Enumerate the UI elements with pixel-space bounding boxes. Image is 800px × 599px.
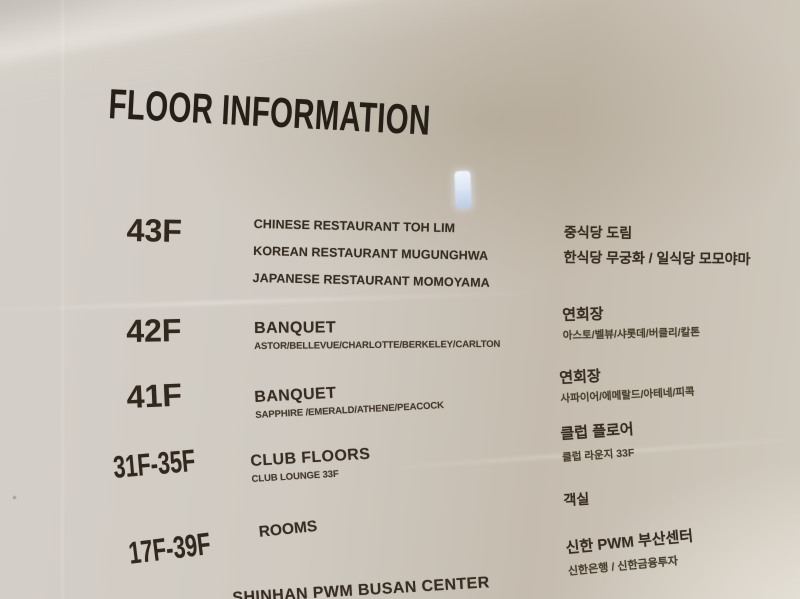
blue-light-reflection xyxy=(454,171,471,209)
floor-label-31f-35f: 31F-35F xyxy=(112,445,196,483)
restaurants-ko-list: 중식당 도림 한식당 무궁화 / 일식당 모모야마 xyxy=(563,220,750,272)
banquet-42f-ko: 연회장 아스토/벨뷰/샤롯데/버클리/칼톤 xyxy=(562,303,700,343)
venue-ko-title: 연회장 xyxy=(562,303,700,324)
club-floors-ko: 클럽 플로어 클럽 라운지 33F xyxy=(560,421,636,465)
venue-ko-title: 연회장 xyxy=(559,363,694,387)
banquet-42f-en: BANQUET ASTOR/BELLEVUE/CHARLOTTE/BERKELE… xyxy=(254,318,500,352)
floor-label-41f: 41F xyxy=(126,379,182,413)
dust-speck xyxy=(13,496,16,499)
shinhan-center-ko: 신한 PWM 부산센터 신한은행 / 신한금융투자 xyxy=(565,528,696,579)
banquet-41f-en: BANQUET SAPPHIRE /EMERALD/ATHENE/PEACOCK xyxy=(254,379,444,421)
restaurant-ko-line: 한식당 무궁화 / 일식당 모모야마 xyxy=(563,245,750,272)
shinhan-center-en: SHINHAN PWM BUSAN CENTER SHINHAN BANK / … xyxy=(232,574,491,599)
panel-edge-highlight xyxy=(61,0,64,599)
club-floors-en: CLUB FLOORS CLUB LOUNGE 33F xyxy=(250,446,372,485)
restaurant-en-line: JAPANESE RESTAURANT MOMOYAMA xyxy=(252,265,490,297)
venue-en-title: SHINHAN PWM BUSAN CENTER xyxy=(232,574,490,599)
venue-ko-sub: 아스토/벨뷰/샤롯데/버클리/칼톤 xyxy=(563,324,701,343)
venue-ko-sub: 사파이어/에메랄드/아테네/피콕 xyxy=(560,384,695,406)
floor-label-42f: 42F xyxy=(126,314,182,347)
rooms-ko: 객실 xyxy=(563,489,590,510)
sign-title: FLOOR INFORMATION xyxy=(107,80,431,145)
venue-ko-title: 클럽 플로어 xyxy=(560,421,634,443)
venue-ko-sub: 클럽 라운지 33F xyxy=(562,445,636,465)
floor-label-43f: 43F xyxy=(126,214,182,247)
venue-en-sub: ASTOR/BELLEVUE/CHARLOTTE/BERKELEY/CARLTO… xyxy=(254,339,500,352)
floor-information-sign-photo: FLOOR INFORMATION 43F 42F 41F 31F-35F 17… xyxy=(0,0,800,599)
restaurants-en-list: CHINESE RESTAURANT TOH LIM KOREAN RESTAU… xyxy=(252,211,491,297)
venue-en-title: BANQUET xyxy=(254,318,500,338)
restaurant-ko-line: 중식당 도림 xyxy=(564,220,751,247)
floor-label-17f-39f: 17F-39F xyxy=(127,528,212,569)
rooms-en: ROOMS xyxy=(258,518,318,542)
banquet-41f-ko: 연회장 사파이어/에메랄드/아테네/피콕 xyxy=(559,363,695,406)
